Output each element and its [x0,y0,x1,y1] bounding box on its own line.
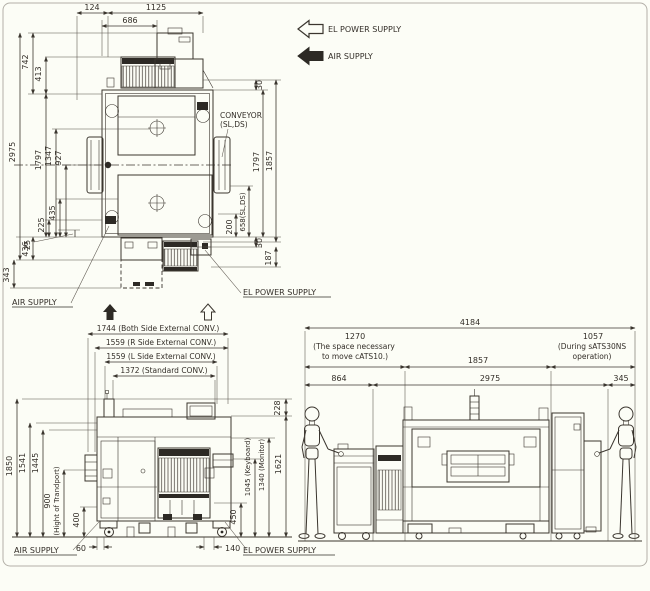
top-dim-435: 435 [48,205,57,220]
el-power-arrow-icon [298,21,323,38]
side-view-scene [298,389,642,541]
front-dim-400: 400 [72,512,81,527]
side-dim-1270: 1270 [345,332,365,341]
side-dim-1057-note2: operation) [573,352,612,361]
side-dim-1270-note2: to move cATS10.) [322,352,388,361]
cart-cats10 [334,444,374,540]
front-dim-900-note: (Hight of Trandport) [53,466,61,535]
legend-el-power-label: EL POWER SUPPLY [328,25,401,34]
side-view-machine [403,389,549,539]
top-dim-200: 200 [225,219,234,234]
top-dim-225: 225 [37,217,46,232]
side-dim-1057: 1057 [583,332,603,341]
top-dim-30-bottom: 30 [255,238,264,248]
front-dim-450: 450 [229,509,238,524]
front-dim-1559l: 1559 (L Side External CONV.) [106,352,215,361]
side-dim-1270-note1: (The space necessary [313,342,395,351]
feeder-dock [376,446,403,533]
top-dim-1857: 1857 [265,151,274,171]
side-dim-2975: 2975 [480,374,500,383]
side-dim-1857: 1857 [468,356,488,365]
top-dim-343: 343 [2,267,11,282]
top-dim-927: 927 [54,150,63,165]
top-dim-2975: 2975 [8,142,17,162]
front-dim-1621: 1621 [274,454,283,474]
air-inlet-arrow-icon [103,304,117,320]
legend-air-supply-label: AIR SUPPLY [328,52,373,61]
front-air-supply-label: AIR SUPPLY [14,546,59,555]
top-dim-1797-left: 1797 [34,150,43,170]
side-dim-1057-note1: (During sATS30NS [558,342,626,351]
top-dim-30-top: 30 [255,80,264,90]
front-dim-1372: 1372 (Standard CONV.) [120,366,207,375]
side-right-unit [552,413,601,539]
front-el-power-label: EL POWER SUPPLY [243,546,316,555]
front-dim-1850: 1850 [5,456,14,476]
side-dim-4184: 4184 [460,318,480,327]
machine-installation-drawing: EL POWER SUPPLY AIR SUPPLY [0,0,650,591]
conveyor-label-2: (SL,DS) [220,120,248,129]
top-air-supply-label: AIR SUPPLY [12,298,57,307]
top-dim-1797-right: 1797 [252,152,261,172]
page-border [3,3,647,566]
bottom-units [121,238,211,288]
top-dim-436: 436 [21,241,30,256]
front-view-dimensions: 1744 (Both Side External CONV.) 1559 (R … [5,324,335,555]
top-view-machine [14,28,232,320]
top-feeder-bank [107,57,175,88]
top-dim-187: 187 [264,250,273,265]
front-dim-1340: 1340 (Monitor) [258,439,266,491]
front-dim-900: 900 [43,493,52,508]
power-inlet-arrow-icon [201,304,215,320]
front-dim-1445: 1445 [31,453,40,473]
top-dim-686: 686 [122,16,137,25]
top-dim-658: 658(SL,DS) [239,192,247,231]
conveyor-label: CONVEYOR [220,111,262,120]
side-dim-864: 864 [331,374,346,383]
front-dim-60: 60 [76,544,86,553]
front-dim-1541: 1541 [18,453,27,473]
front-feeder-bank [158,448,210,520]
air-supply-arrow-icon [298,48,323,65]
drawing-canvas: EL POWER SUPPLY AIR SUPPLY [0,0,650,591]
legend: EL POWER SUPPLY AIR SUPPLY [298,21,401,65]
front-dim-140: 140 [225,544,240,553]
top-dim-1125: 1125 [146,3,166,12]
front-dim-1559r: 1559 (R Side External CONV.) [106,338,216,347]
front-dim-1744: 1744 (Both Side External CONV.) [97,324,220,333]
side-dim-345: 345 [613,374,628,383]
front-dim-1045: 1045 (Keyboard) [244,438,252,497]
top-el-power-label: EL POWER SUPPLY [243,288,316,297]
top-dim-124: 124 [84,3,99,12]
top-dim-742: 742 [21,54,30,69]
top-dim-1347: 1347 [44,146,53,166]
front-dim-228: 228 [273,400,282,415]
top-dim-413: 413 [34,66,43,81]
